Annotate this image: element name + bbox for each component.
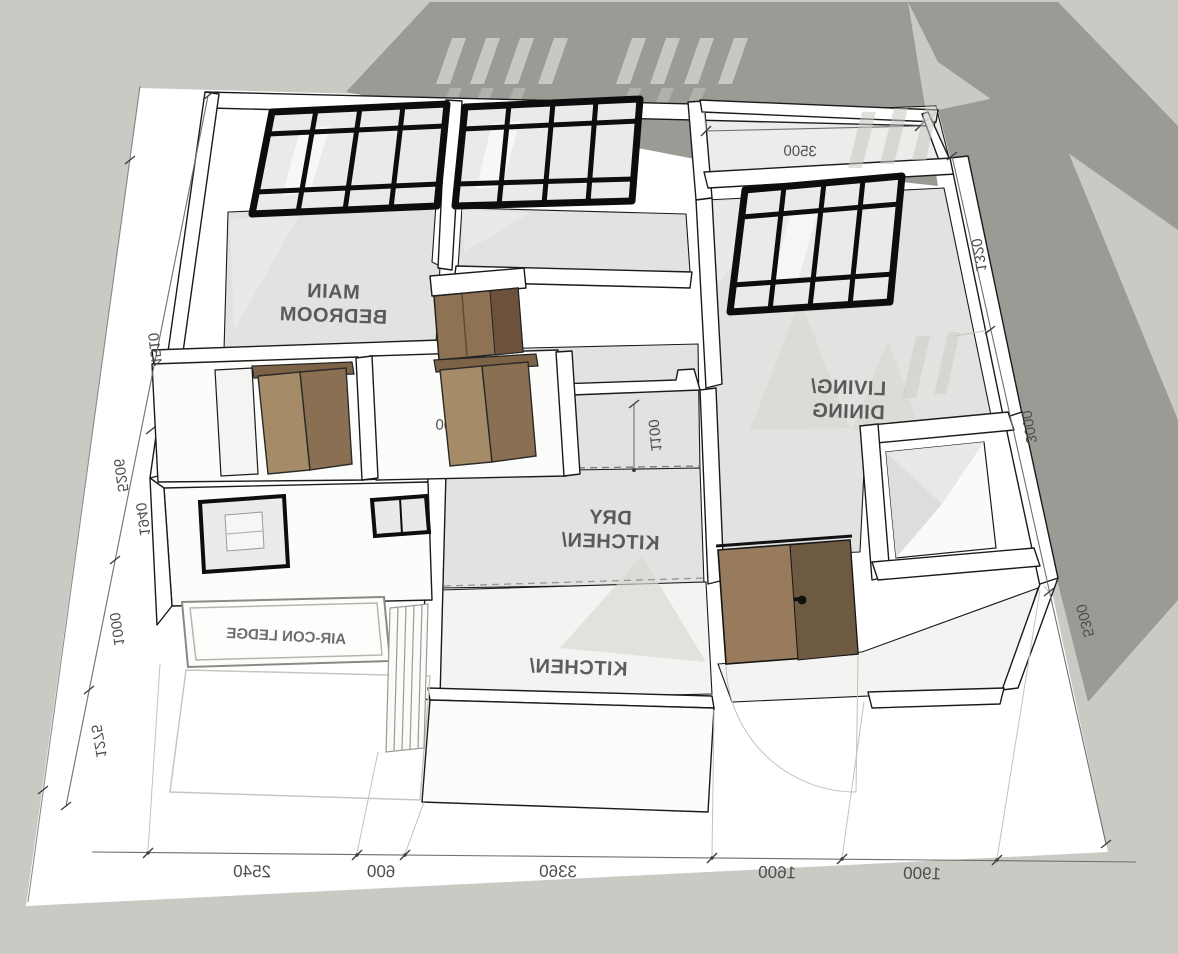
wall-kitchen-south-face <box>422 700 714 812</box>
label-dry-kitchen-2: KITCHEN/ <box>561 529 660 554</box>
window-main-bedroom <box>252 104 447 214</box>
label-main-bedroom-2: BEDROOM <box>279 303 388 329</box>
window-living <box>730 176 902 312</box>
door-bifold-bath1 <box>215 362 354 476</box>
label-living-2: DINING <box>811 400 885 425</box>
wall-porch-south <box>868 688 1004 708</box>
label-living-1: LIVING/ <box>810 376 886 401</box>
window-toilet <box>200 496 288 572</box>
window-bath-small <box>372 496 429 536</box>
floorplan-screenshot: 3500 3000 850 <box>0 0 1178 954</box>
label-main-bedroom-1: MAIN <box>306 280 360 304</box>
floor-dry-kitchen <box>440 468 704 588</box>
shelter-interior <box>886 442 996 558</box>
label-kitchen: KITCHEN/ <box>529 655 628 680</box>
svg-text:1100: 1100 <box>644 419 664 453</box>
door-bedroom2 <box>434 288 523 360</box>
dim-bottom-3: 1600 <box>758 863 796 883</box>
dim-bottom-2: 3360 <box>539 862 577 882</box>
trellis-strip <box>386 604 428 752</box>
door-bifold-bath2 <box>434 354 538 466</box>
dim-bottom-0: 2540 <box>233 862 271 882</box>
label-dry-kitchen-1: DRY <box>588 506 632 529</box>
dim-bottom-4: 1900 <box>903 864 941 884</box>
window-bedroom2 <box>455 99 640 206</box>
dim-bottom-1: 600 <box>367 862 396 881</box>
svg-text:3500: 3500 <box>783 143 817 161</box>
floorplan-render: 3500 3000 850 <box>0 0 1178 954</box>
